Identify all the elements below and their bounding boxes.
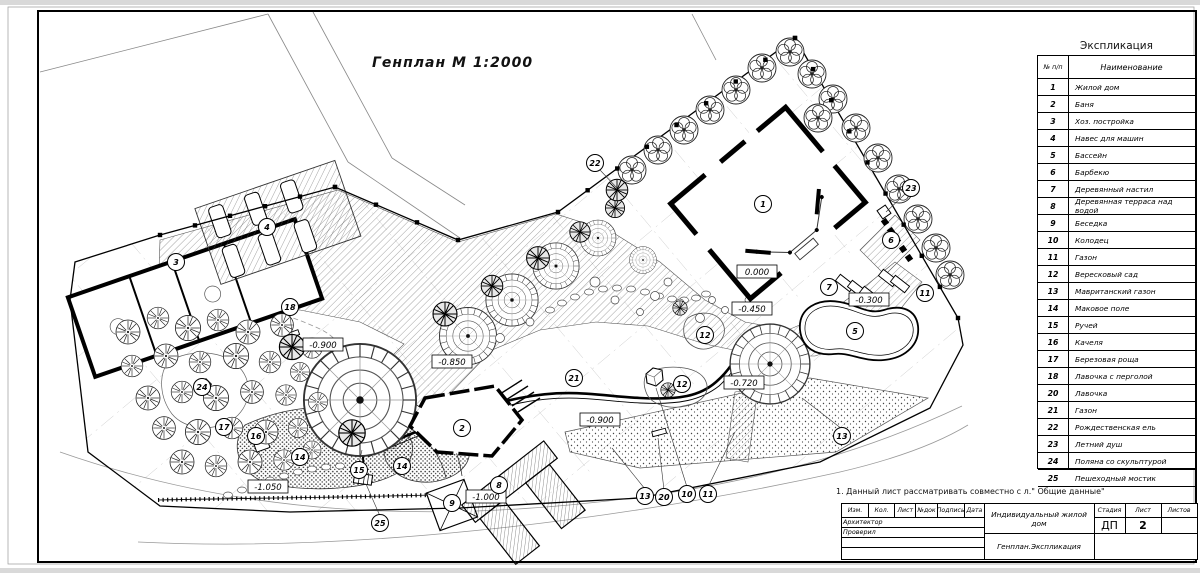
callout-5: 5 <box>847 323 864 340</box>
tb-stage-value: ДП <box>1094 517 1125 533</box>
svg-text:0.000: 0.000 <box>745 268 769 278</box>
legend-item-number: 5 <box>1038 151 1068 160</box>
top-edge <box>0 0 1200 5</box>
callout-7: 7 <box>821 279 838 296</box>
tb-roles: АрхитекторПроверил <box>843 518 903 538</box>
deciduous-tree <box>904 205 932 233</box>
birch-tree <box>288 418 307 437</box>
callout-14: 14 <box>394 458 411 475</box>
callout-21: 21 <box>566 370 583 387</box>
legend-item-number: 24 <box>1038 457 1068 466</box>
stepping-stone <box>336 463 345 469</box>
legend-item-name: Ручей <box>1068 321 1195 330</box>
stepping-stone <box>294 469 303 475</box>
elevation-mark: -0.850 <box>432 355 472 368</box>
legend-header-num: № п/п <box>1038 64 1068 71</box>
svg-text:24: 24 <box>196 383 208 392</box>
legend-item-number: 11 <box>1038 253 1068 262</box>
legend-item-name: Вересковый сад <box>1068 270 1195 279</box>
legend-item-name: Летний душ <box>1068 440 1195 449</box>
birch-tree <box>121 355 143 377</box>
fence-post <box>883 191 887 195</box>
legend-row: 17Березовая роща <box>1038 351 1195 368</box>
callout-23: 23 <box>903 180 920 197</box>
shrub <box>496 334 505 343</box>
conifer-tree <box>279 334 304 359</box>
elevation-mark: -0.900 <box>580 413 620 426</box>
svg-text:20: 20 <box>658 493 670 502</box>
fence-post <box>333 185 337 189</box>
bottom-edge <box>0 568 1200 573</box>
legend-row: 1Жилой дом <box>1038 79 1195 96</box>
legend-item-number: 9 <box>1038 219 1068 228</box>
legend-row: 23Летний душ <box>1038 436 1195 453</box>
svg-text:9: 9 <box>449 499 455 508</box>
birch-tree <box>171 381 193 403</box>
elevation-mark: -0.450 <box>732 302 772 315</box>
tb-project-name: Индивидуальный жилой дом <box>984 504 1094 533</box>
legend-title: Экспликация <box>1037 40 1196 52</box>
stepping-stone <box>546 307 555 313</box>
svg-text:7: 7 <box>826 283 832 292</box>
callout-10: 10 <box>679 486 696 503</box>
conifer-tree <box>481 275 503 297</box>
fence-post <box>263 204 267 208</box>
svg-text:2: 2 <box>459 424 465 433</box>
legend-table: № п/п Наименование 1Жилой дом2Баня3Хоз. … <box>1037 55 1196 469</box>
legend-item-number: 13 <box>1038 287 1068 296</box>
stepping-stone <box>641 289 650 295</box>
callout-12: 12 <box>674 376 691 393</box>
deciduous-tree <box>748 54 776 82</box>
svg-text:18: 18 <box>284 303 296 312</box>
legend-item-name: Навес для машин <box>1068 134 1195 143</box>
birch-tree <box>116 320 140 344</box>
legend-item-number: 8 <box>1038 202 1068 211</box>
svg-text:12: 12 <box>676 380 688 389</box>
fence-post <box>938 285 942 289</box>
birch-tree <box>153 417 176 440</box>
tb-sheets-label: Листов <box>1161 504 1197 517</box>
legend-item-number: 25 <box>1038 474 1068 483</box>
svg-text:-0.450: -0.450 <box>738 305 765 315</box>
fence-post <box>920 254 924 258</box>
tb-revision-col: Дата <box>965 504 984 517</box>
legend-row: 25Пешеходный мостик <box>1038 470 1195 487</box>
svg-text:8: 8 <box>496 481 502 490</box>
shrub <box>651 292 660 301</box>
legend-item-name: Барбекю <box>1068 168 1195 177</box>
callout-22: 22 <box>587 155 604 172</box>
stepping-stone <box>571 294 580 300</box>
tb-divider <box>842 547 984 548</box>
svg-text:13: 13 <box>836 432 848 441</box>
legend-item-number: 6 <box>1038 168 1068 177</box>
svg-text:11: 11 <box>919 289 930 298</box>
conifer-tree <box>605 198 624 217</box>
elevation-mark: 0.000 <box>737 265 777 278</box>
stepping-stone <box>308 466 317 472</box>
fence-post <box>556 210 560 214</box>
legend-item-name: Деревянный настил <box>1068 185 1195 194</box>
deciduous-tree <box>864 144 892 172</box>
legend-item-name: Беседка <box>1068 219 1195 228</box>
legend-item-name: Баня <box>1068 100 1195 109</box>
fence-post <box>704 101 708 105</box>
deciduous-tree <box>842 114 870 142</box>
legend-row: 9Беседка <box>1038 215 1195 232</box>
birch-tree <box>236 320 260 344</box>
legend-item-name: Газон <box>1068 253 1195 262</box>
legend-item-number: 15 <box>1038 321 1068 330</box>
callout-4: 4 <box>259 219 276 236</box>
legend-item-number: 22 <box>1038 423 1068 432</box>
deciduous-tree <box>922 234 950 262</box>
callout-20: 20 <box>656 489 673 506</box>
legend-item-name: Рождественская ель <box>1068 423 1195 432</box>
tb-role-label: Проверил <box>843 528 903 538</box>
conifer-tree <box>661 383 675 397</box>
legend-row: 3Хоз. постройка <box>1038 113 1195 130</box>
legend-item-number: 1 <box>1038 83 1068 92</box>
tb-role-label: Архитектор <box>843 518 903 528</box>
callout-15: 15 <box>351 462 368 479</box>
fence-post <box>901 222 905 226</box>
svg-text:16: 16 <box>250 432 262 441</box>
stepping-stone <box>322 464 331 470</box>
legend-item-number: 17 <box>1038 355 1068 364</box>
callout-25: 25 <box>372 515 389 532</box>
deciduous-tree <box>618 156 646 184</box>
elevation-mark: -0.900 <box>303 338 343 351</box>
callout-13: 13 <box>637 488 654 505</box>
svg-text:10: 10 <box>681 490 693 499</box>
birch-tree <box>290 362 309 381</box>
stepping-stone <box>692 295 701 301</box>
sheet-note: 1. Данный лист рассматривать совместно с… <box>836 487 1200 496</box>
fence-post <box>645 145 649 149</box>
tb-revision-col: Изм. <box>842 504 869 517</box>
callout-11: 11 <box>917 285 934 302</box>
well-10 <box>646 368 663 386</box>
fence-post <box>829 98 833 102</box>
svg-text:23: 23 <box>905 184 917 193</box>
elevation-mark: -0.720 <box>724 376 764 389</box>
stepping-stone <box>585 289 594 295</box>
svg-text:-0.900: -0.900 <box>586 416 613 426</box>
svg-text:-0.720: -0.720 <box>730 379 757 389</box>
birch-tree <box>274 450 294 470</box>
legend-item-name: Жилой дом <box>1068 83 1195 92</box>
fence-post <box>456 238 460 242</box>
deciduous-tree <box>644 136 672 164</box>
stepping-stone <box>627 286 636 292</box>
fence-post <box>847 129 851 133</box>
tb-drawing-name: Генплан.Экспликация <box>984 533 1094 559</box>
callout-6: 6 <box>883 232 900 249</box>
svg-text:14: 14 <box>294 453 306 462</box>
legend-item-number: 12 <box>1038 270 1068 279</box>
tb-sheet-label: Лист <box>1125 504 1161 517</box>
svg-text:5: 5 <box>852 327 858 336</box>
callout-1: 1 <box>755 196 772 213</box>
callout-3: 3 <box>168 254 185 271</box>
tb-revision-col: Подпись <box>938 504 965 517</box>
birch-tree <box>238 450 262 474</box>
tb-revision-col: Лист <box>895 504 916 517</box>
callout-8: 8 <box>491 477 508 494</box>
elevation-mark: -1.050 <box>248 480 288 493</box>
legend-row: 20Лавочка <box>1038 385 1195 402</box>
shrub <box>611 296 619 304</box>
legend-item-number: 21 <box>1038 406 1068 415</box>
legend-item-number: 10 <box>1038 236 1068 245</box>
birch-tree <box>259 351 281 373</box>
birch-tree <box>170 450 194 474</box>
conifer-tree <box>527 247 550 270</box>
legend-row: 11Газон <box>1038 249 1195 266</box>
shrub <box>664 278 672 286</box>
legend-column-divider <box>1068 56 1069 468</box>
legend-item-number: 2 <box>1038 100 1068 109</box>
svg-text:14: 14 <box>396 462 408 471</box>
shrub <box>722 307 729 314</box>
fence-post <box>674 123 678 127</box>
legend-item-name: Лавочка с перголой <box>1068 372 1195 381</box>
legend-row: 18Лавочка с перголой <box>1038 368 1195 385</box>
conifer-tree <box>570 222 590 242</box>
shrub <box>696 314 705 323</box>
callout-9: 9 <box>444 495 461 512</box>
birch-tree <box>185 419 210 444</box>
deciduous-tree <box>776 38 804 66</box>
callout-17: 17 <box>216 419 233 436</box>
birch-tree <box>175 315 200 340</box>
callout-14: 14 <box>292 449 309 466</box>
svg-text:-1.050: -1.050 <box>254 483 281 493</box>
legend-row: 22Рождественская ель <box>1038 419 1195 436</box>
birch-tree <box>271 314 294 337</box>
svg-text:-0.900: -0.900 <box>309 341 336 351</box>
stepping-stone <box>702 291 711 297</box>
stepping-stone <box>668 296 677 302</box>
birch-tree <box>308 392 327 411</box>
stepping-stone <box>280 473 289 479</box>
fence-post <box>374 202 378 206</box>
svg-text:-0.850: -0.850 <box>438 358 465 368</box>
tb-sheet-number: 2 <box>1125 517 1161 533</box>
svg-text:-1.000: -1.000 <box>472 493 499 503</box>
conifer-tree <box>673 301 687 315</box>
fence-post <box>811 67 815 71</box>
legend-item-name: Бассейн <box>1068 151 1195 160</box>
fence-post <box>415 220 419 224</box>
fence-post <box>615 166 619 170</box>
birch-tree <box>207 309 229 331</box>
legend-row: 4Навес для машин <box>1038 130 1195 147</box>
birch-tree <box>189 351 211 373</box>
conifer-tree <box>433 302 457 326</box>
legend-item-number: 18 <box>1038 372 1068 381</box>
svg-text:15: 15 <box>353 466 365 475</box>
legend-row: 8Деревянная терраса над водой <box>1038 198 1195 215</box>
legend-item-number: 14 <box>1038 304 1068 313</box>
legend-item-name: Березовая роща <box>1068 355 1195 364</box>
shrub <box>526 318 534 326</box>
fence-post <box>734 79 738 83</box>
legend-item-number: 3 <box>1038 117 1068 126</box>
svg-text:1: 1 <box>760 200 766 209</box>
legend-item-name: Поляна со скульптурой <box>1068 457 1195 466</box>
legend-item-name: Деревянная терраса над водой <box>1068 197 1195 215</box>
circular-plaza <box>630 247 657 274</box>
legend-row: 13Мавританский газон <box>1038 283 1195 300</box>
legend-item-number: 7 <box>1038 185 1068 194</box>
legend-header-name: Наименование <box>1068 63 1195 72</box>
legend-item-number: 4 <box>1038 134 1068 143</box>
svg-text:25: 25 <box>374 519 386 528</box>
svg-text:21: 21 <box>568 374 579 383</box>
legend-item-name: Маковое поле <box>1068 304 1195 313</box>
title-block: Изм.Кол.Лист№докПодписьДата АрхитекторПр… <box>841 503 1198 560</box>
legend-item-number: 16 <box>1038 338 1068 347</box>
svg-text:13: 13 <box>639 492 651 501</box>
legend-row: 21Газон <box>1038 402 1195 419</box>
deciduous-tree <box>696 96 724 124</box>
fence-post <box>956 316 960 320</box>
fence-post <box>793 36 797 40</box>
stepping-stone <box>599 286 608 292</box>
conifer-tree <box>606 179 628 201</box>
birch-tree <box>276 385 296 405</box>
legend-row: 6Барбекю <box>1038 164 1195 181</box>
conifer-tree <box>339 420 365 446</box>
legend-row: 12Вересковый сад <box>1038 266 1195 283</box>
fence-post <box>585 188 589 192</box>
birch-tree <box>136 386 160 410</box>
tb-sheets-total <box>1161 517 1197 533</box>
svg-text:12: 12 <box>699 331 711 340</box>
callout-2: 2 <box>454 420 471 437</box>
stepping-stone <box>224 492 233 498</box>
elevation-mark: -0.300 <box>849 293 889 306</box>
svg-text:11: 11 <box>702 490 713 499</box>
legend-item-name: Газон <box>1068 406 1195 415</box>
birch-tree <box>241 381 264 404</box>
svg-text:6: 6 <box>888 236 894 245</box>
callout-18: 18 <box>282 299 299 316</box>
shrub <box>709 297 716 304</box>
svg-text:22: 22 <box>589 159 601 168</box>
tb-stage-label: Стадия <box>1094 504 1125 517</box>
birch-tree <box>205 455 227 477</box>
shrub <box>637 309 644 316</box>
callout-16: 16 <box>248 428 265 445</box>
legend-item-number: 20 <box>1038 389 1068 398</box>
legend-row: 5Бассейн <box>1038 147 1195 164</box>
legend-item-name: Мавританский газон <box>1068 287 1195 296</box>
svg-text:4: 4 <box>263 223 270 232</box>
callout-24: 24 <box>194 379 211 396</box>
callout-13: 13 <box>834 428 851 445</box>
deciduous-tree <box>798 60 826 88</box>
stepping-stone <box>558 300 567 306</box>
callout-11: 11 <box>700 486 717 503</box>
plan-title: Генплан М 1:2000 <box>372 55 533 71</box>
circular-plaza <box>730 324 810 404</box>
legend-item-name: Колодец <box>1068 236 1195 245</box>
legend-row: 14Маковое поле <box>1038 300 1195 317</box>
birch-tree <box>223 343 248 368</box>
legend-row: 7Деревянный настил <box>1038 181 1195 198</box>
fence-post <box>158 233 162 237</box>
drawing-sheet: { "sheet": { "plan_title": "Генплан М 1:… <box>0 0 1200 573</box>
legend-row: 16Качеля <box>1038 334 1195 351</box>
fence-post <box>298 194 302 198</box>
deciduous-tree <box>670 116 698 144</box>
legend-item-name: Лавочка <box>1068 389 1195 398</box>
stepping-stone <box>613 285 622 291</box>
tb-revision-col: Кол. <box>869 504 895 517</box>
deciduous-tree <box>804 104 832 132</box>
legend-item-name: Хоз. постройка <box>1068 117 1195 126</box>
legend-header-row: № п/п Наименование <box>1038 56 1195 79</box>
legend-row: 24Поляна со скульптурой <box>1038 453 1195 470</box>
svg-text:17: 17 <box>218 423 230 432</box>
callout-12: 12 <box>697 327 714 344</box>
birch-tree <box>147 307 169 329</box>
fence-post <box>865 160 869 164</box>
fence-post <box>763 58 767 62</box>
fence-post <box>228 214 232 218</box>
svg-text:-0.300: -0.300 <box>855 296 882 306</box>
legend-row: 2Баня <box>1038 96 1195 113</box>
legend-row: 10Колодец <box>1038 232 1195 249</box>
tb-revision-col: №док <box>916 504 937 517</box>
stepping-stone <box>238 487 247 493</box>
legend-row: 15Ручей <box>1038 317 1195 334</box>
shrub <box>590 277 600 287</box>
legend-item-name: Качеля <box>1068 338 1195 347</box>
legend-item-name: Пешеходный мостик <box>1068 474 1195 483</box>
legend-item-number: 23 <box>1038 440 1068 449</box>
fence-post <box>193 223 197 227</box>
svg-text:3: 3 <box>173 258 179 267</box>
birch-tree <box>154 344 178 368</box>
